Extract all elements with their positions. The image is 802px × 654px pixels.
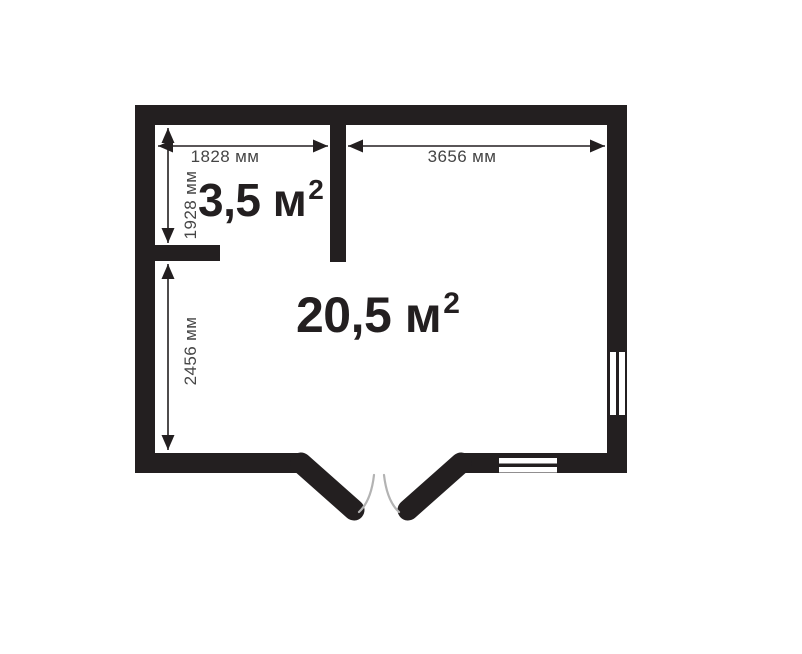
floor-plan: 1828 мм 3656 мм 1928 мм 2456 мм 3,5 м2 2… xyxy=(0,0,802,654)
room-area-small-exponent: 2 xyxy=(308,174,323,205)
room-area-small: 3,5 м2 xyxy=(198,177,321,223)
wall-right xyxy=(607,105,627,473)
wall-bottom-left xyxy=(135,453,302,473)
window-right-mullion xyxy=(616,352,619,415)
dimension-label-small-room-width: 1828 мм xyxy=(191,147,260,167)
dimension-label-main-room-height: 2456 мм xyxy=(181,317,201,386)
room-area-large: 20,5 м2 xyxy=(296,290,457,340)
window-right xyxy=(610,352,625,415)
wall-left xyxy=(135,105,155,473)
door-swing-right xyxy=(384,475,399,512)
window-bottom-mullion xyxy=(499,464,557,468)
room-area-large-exponent: 2 xyxy=(443,287,459,320)
room-area-large-value: 20,5 м xyxy=(296,287,441,343)
entry-wall-left xyxy=(301,463,354,510)
wall-stub xyxy=(140,245,220,261)
dimension-label-main-room-width: 3656 мм xyxy=(428,147,497,167)
room-area-small-value: 3,5 м xyxy=(198,174,306,226)
wall-top xyxy=(135,105,627,125)
entry-wall-right xyxy=(408,463,461,510)
window-bottom xyxy=(499,458,557,473)
wall-divider xyxy=(330,105,346,262)
